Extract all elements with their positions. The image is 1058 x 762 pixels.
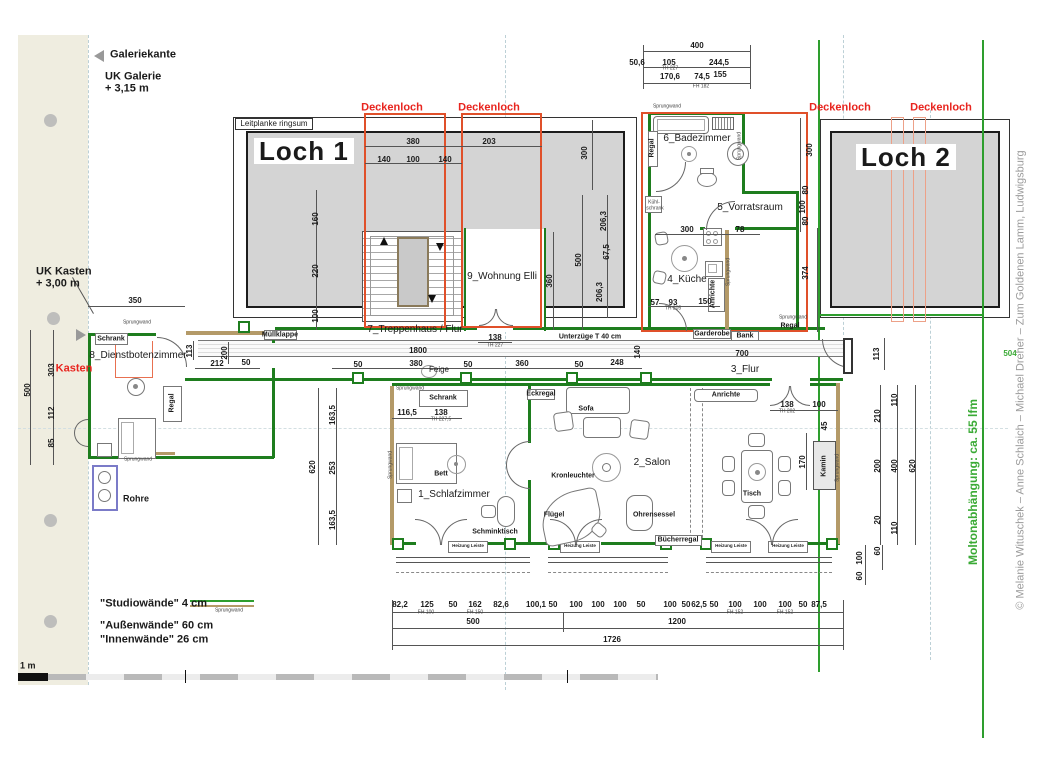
dim: 380 bbox=[406, 138, 419, 146]
dim: 50 bbox=[682, 601, 691, 609]
dim-line bbox=[392, 628, 843, 629]
dim-line bbox=[843, 600, 844, 650]
bed-pillow bbox=[399, 447, 413, 480]
marker-dot bbox=[44, 615, 57, 628]
deckenloch-label: Deckenloch bbox=[361, 103, 423, 114]
dim: 113 bbox=[873, 348, 881, 361]
dining-chair bbox=[722, 456, 735, 472]
dim: 57 bbox=[651, 299, 660, 307]
heizung-label: Heizung Leiste bbox=[772, 544, 804, 549]
bathtub-inner bbox=[657, 119, 705, 131]
guide-line bbox=[18, 428, 1008, 429]
sprungwand-label: Sprungwand bbox=[396, 387, 424, 392]
dim: 100,1 bbox=[526, 601, 546, 609]
dim-line bbox=[365, 146, 542, 147]
regal-label: Regal bbox=[780, 323, 799, 330]
dim: 50 bbox=[354, 361, 363, 369]
dim: 80 bbox=[802, 186, 810, 195]
pipe bbox=[98, 471, 111, 484]
room-vorratsraum: 5_Vorratsraum bbox=[717, 203, 783, 213]
dim-fh: FH 150 bbox=[467, 611, 483, 616]
dim: 350 bbox=[128, 297, 141, 305]
dim: 170 bbox=[799, 455, 807, 468]
dim: 140 bbox=[377, 156, 390, 164]
dim-line bbox=[392, 612, 843, 613]
sofa bbox=[566, 387, 630, 414]
burner bbox=[713, 239, 718, 244]
dim-th: TH 202 bbox=[779, 410, 795, 415]
dim: 78 bbox=[736, 226, 745, 234]
door-gap bbox=[156, 332, 186, 336]
legend-innenwaende: "Innenwände" 26 cm bbox=[100, 635, 208, 646]
uk-galerie-label: UK Galerie bbox=[105, 72, 161, 83]
dim: 60 bbox=[874, 547, 882, 556]
regal-label: Regal bbox=[169, 393, 176, 412]
dim: 113 bbox=[186, 345, 194, 358]
room-treppenhaus: 7_Treppenhaus / Flur bbox=[367, 325, 462, 335]
deckenloch-label: Deckenloch bbox=[809, 103, 871, 114]
chandelier-center bbox=[602, 463, 611, 472]
dim-line bbox=[865, 545, 866, 585]
shower-dot bbox=[687, 152, 691, 156]
bett-label: Bett bbox=[434, 471, 448, 478]
heizung-label: Heizung Leiste bbox=[715, 544, 747, 549]
dim: 50 bbox=[464, 361, 473, 369]
ohrensessel-label: Ohrensessel bbox=[633, 512, 675, 519]
dim: 203 bbox=[482, 138, 495, 146]
dim: 112 bbox=[48, 407, 56, 420]
sprungwand-label: Sprungwand bbox=[836, 454, 841, 482]
dim-th: TH 205 bbox=[665, 307, 681, 312]
schrank-label: Schrank bbox=[429, 395, 457, 402]
dim: 100 bbox=[312, 309, 320, 322]
dim-fh: FH 100 bbox=[418, 611, 434, 616]
room-wohnung-elli: 9_Wohnung Elli bbox=[467, 272, 537, 282]
small-fixture bbox=[97, 443, 112, 457]
dim: 20 bbox=[874, 516, 882, 525]
dim: 82,6 bbox=[493, 601, 509, 609]
dim: 80 bbox=[802, 217, 810, 226]
wall-post bbox=[352, 372, 364, 384]
sprungwand-label: Sprungwand bbox=[653, 105, 681, 110]
dim: 163,5 bbox=[329, 510, 337, 530]
bay-dash bbox=[396, 572, 530, 573]
galeriekante-marker bbox=[94, 50, 104, 62]
dim: 100 bbox=[406, 156, 419, 164]
dim: 160 bbox=[312, 212, 320, 225]
dim-line bbox=[592, 120, 593, 190]
dim: 100 bbox=[812, 401, 825, 409]
dim: 138 bbox=[488, 334, 501, 342]
dim: 300 bbox=[680, 226, 693, 234]
dim: 200 bbox=[874, 459, 882, 472]
dim: 50 bbox=[242, 359, 251, 367]
uk-kasten-label: UK Kasten bbox=[36, 267, 92, 278]
section-tick bbox=[567, 670, 568, 683]
wall bbox=[810, 378, 843, 381]
dining-chair bbox=[748, 505, 765, 519]
dim: 50,6 bbox=[629, 59, 645, 67]
dim-th: TH 227 bbox=[487, 344, 503, 349]
sink-basin bbox=[708, 264, 717, 273]
heizung-label: Heizung Leiste bbox=[452, 544, 484, 549]
room-flur: 3_Flur bbox=[731, 365, 759, 375]
deckenloch-label: Deckenloch bbox=[910, 103, 972, 114]
dim: 206,3 bbox=[596, 282, 604, 302]
dim: 360 bbox=[515, 360, 528, 368]
dim: 87,5 bbox=[811, 601, 827, 609]
bay-dash bbox=[706, 572, 832, 573]
bank-label: Bank bbox=[736, 333, 753, 340]
legend-aussenwaende: "Außenwände" 60 cm bbox=[100, 621, 213, 632]
dim-line bbox=[195, 368, 260, 369]
dim: 45 bbox=[821, 422, 829, 431]
dim: 212 bbox=[210, 360, 223, 368]
entrance-frame bbox=[843, 338, 853, 374]
dim-line bbox=[655, 234, 760, 235]
kamin-label: Kamin bbox=[821, 455, 828, 476]
rug-dot bbox=[454, 462, 458, 466]
room-schlafzimmer: 1_Schlafzimmer bbox=[418, 490, 490, 500]
dim: 60 bbox=[856, 572, 864, 581]
dim: 210 bbox=[874, 409, 882, 422]
dim: 162 bbox=[468, 601, 481, 609]
door-salon-bedroom bbox=[506, 441, 530, 465]
marker-dot bbox=[47, 312, 60, 325]
wall-post bbox=[826, 538, 838, 550]
buecherregal-label: Bücherregal bbox=[658, 537, 699, 544]
dim-line bbox=[563, 612, 564, 632]
wall bbox=[88, 456, 274, 459]
wall-post bbox=[504, 538, 516, 550]
unterzuege-label: Unterzüge T 40 cm bbox=[559, 334, 621, 341]
garderobe-label: Garderobe bbox=[694, 331, 729, 338]
dim: 155 bbox=[713, 71, 726, 79]
dim: 50 bbox=[799, 601, 808, 609]
heizung-label: Heizung Leiste bbox=[564, 544, 596, 549]
dim: 620 bbox=[309, 460, 317, 473]
dining-chair bbox=[748, 433, 765, 447]
dim: 85 bbox=[48, 439, 56, 448]
dim-line bbox=[750, 45, 751, 89]
dim: 253 bbox=[329, 461, 337, 474]
window-line bbox=[706, 557, 832, 558]
dim: 100 bbox=[753, 601, 766, 609]
schminktisch-label: Schminktisch bbox=[472, 529, 518, 536]
dim-line bbox=[817, 228, 818, 332]
dim: 700 bbox=[735, 350, 748, 358]
dim-fh: FH 152 bbox=[727, 611, 743, 616]
dim: 62,5 bbox=[691, 601, 707, 609]
dim-line bbox=[882, 545, 883, 570]
dim: 400 bbox=[891, 459, 899, 472]
schrank-label: Schrank bbox=[97, 336, 125, 343]
toilet-tank bbox=[700, 168, 714, 174]
dim: 1200 bbox=[668, 618, 686, 626]
scale-label: 1 m bbox=[20, 662, 36, 671]
dim-line bbox=[88, 306, 185, 307]
section-tick bbox=[185, 670, 186, 683]
dim: 100 bbox=[613, 601, 626, 609]
dining-chair bbox=[722, 480, 735, 496]
french-door bbox=[746, 519, 772, 545]
sofa-label: Sofa bbox=[578, 406, 593, 413]
fluegel-label: Flügel bbox=[544, 512, 565, 519]
galeriekante-label: Galeriekante bbox=[110, 50, 176, 61]
deckenloch-label: Deckenloch bbox=[458, 103, 520, 114]
dim: 67,5 bbox=[603, 244, 611, 260]
dim-line bbox=[884, 338, 885, 370]
servant-bed-pillow bbox=[121, 422, 134, 454]
armchair bbox=[629, 419, 650, 440]
dim: 620 bbox=[909, 459, 917, 472]
dim: 500 bbox=[24, 383, 32, 396]
dim: 50 bbox=[575, 361, 584, 369]
dim: 116,5 bbox=[397, 409, 417, 417]
room-dienstbotenzimmer: 8_Dienstbotenzimmer bbox=[89, 351, 186, 361]
dim: 170,6 bbox=[660, 73, 680, 81]
dim-line bbox=[643, 67, 750, 68]
dim: 206,3 bbox=[600, 211, 608, 231]
dim: 248 bbox=[610, 359, 623, 367]
dim-line bbox=[392, 645, 843, 646]
dim: 50 bbox=[449, 601, 458, 609]
stool-dot bbox=[133, 384, 138, 389]
french-door bbox=[441, 519, 467, 545]
molton-label: Moltonabhängung: ca. 55 lfm bbox=[967, 399, 979, 565]
dim-line bbox=[800, 118, 801, 232]
dim: 300 bbox=[806, 143, 814, 156]
wall-post bbox=[460, 372, 472, 384]
wall-post bbox=[238, 321, 250, 333]
dim: 150 bbox=[698, 298, 711, 306]
table-dot bbox=[755, 470, 760, 475]
sprungwand-label: Sprungwand bbox=[738, 132, 743, 160]
dim: 100 bbox=[663, 601, 676, 609]
partition-dashed bbox=[702, 388, 703, 543]
dining-chair bbox=[778, 480, 791, 496]
loch1-title: Loch 1 bbox=[254, 138, 354, 164]
sprungwand-label: Sprungwand bbox=[389, 451, 394, 479]
kronleuchter-label: Kronleuchter bbox=[551, 473, 595, 480]
bay-dash bbox=[548, 572, 668, 573]
dim: 303 bbox=[48, 363, 56, 376]
credits-label: © Melanie Wituschek – Anne Schlaich – Mi… bbox=[1016, 150, 1027, 609]
dim: 125 bbox=[420, 601, 433, 609]
sprungwand-label: Sprungwand bbox=[779, 316, 807, 321]
sprungwand-label: Sprungwand bbox=[123, 321, 151, 326]
marker-dot bbox=[44, 114, 57, 127]
sprungwand-label: Sprungwand bbox=[215, 609, 243, 614]
dim: 110 bbox=[891, 522, 899, 535]
dim: 100 bbox=[799, 200, 807, 213]
dim: 374 bbox=[802, 266, 810, 279]
dining-chair bbox=[778, 456, 791, 472]
molton-line bbox=[982, 40, 984, 738]
dim: 50 bbox=[710, 601, 719, 609]
tisch-label: Tisch bbox=[743, 491, 761, 498]
french-door bbox=[772, 519, 798, 545]
regal-label: Regal bbox=[649, 138, 656, 157]
dim: 100 bbox=[778, 601, 791, 609]
window-line bbox=[396, 562, 530, 563]
dim: 100 bbox=[591, 601, 604, 609]
muellklappe-label: Müllklappe bbox=[262, 332, 298, 339]
dim: 163,5 bbox=[329, 405, 337, 425]
wall-post bbox=[392, 538, 404, 550]
dim: 220 bbox=[312, 264, 320, 277]
dim: 500 bbox=[575, 253, 583, 266]
dim: 100 bbox=[569, 601, 582, 609]
dim: 300 bbox=[581, 146, 589, 159]
anrichte-label: Anrichte bbox=[712, 392, 740, 399]
dim-line bbox=[332, 368, 642, 369]
uk-kasten-marker bbox=[76, 329, 86, 341]
dim: 50 bbox=[637, 601, 646, 609]
window-line bbox=[548, 562, 668, 563]
dim: 380 bbox=[409, 360, 422, 368]
dim: 74,5 bbox=[694, 73, 710, 81]
dim-fh: FH 182 bbox=[693, 85, 709, 90]
vanity-chair bbox=[497, 496, 515, 527]
dim: 100 bbox=[728, 601, 741, 609]
wall bbox=[528, 480, 531, 543]
feige-label: Feige bbox=[429, 366, 449, 374]
wall-post bbox=[566, 372, 578, 384]
table-dot bbox=[682, 256, 687, 261]
coffee-table bbox=[583, 417, 621, 438]
rohre-label: Rohre bbox=[123, 495, 149, 504]
armchair bbox=[553, 411, 574, 432]
window-line bbox=[396, 557, 530, 558]
room-salon: 2_Salon bbox=[634, 458, 671, 468]
dim-th: TH 227 bbox=[662, 67, 678, 72]
dim-fh: FH 152 bbox=[777, 611, 793, 616]
dim: 360 bbox=[546, 274, 554, 287]
kasten-label: Kasten bbox=[56, 364, 93, 375]
marker-dot bbox=[44, 514, 57, 527]
wall-post bbox=[640, 372, 652, 384]
small-fixture bbox=[397, 489, 412, 503]
dim: 140 bbox=[438, 156, 451, 164]
floorplan-canvas: GaleriekanteUK Galerie+ 3,15 mUK Kasten+… bbox=[0, 0, 1058, 762]
dim: 50 bbox=[549, 601, 558, 609]
door-salon-bedroom bbox=[506, 465, 530, 489]
scale-bar bbox=[18, 673, 48, 681]
dim-line bbox=[30, 330, 31, 465]
loch2-title: Loch 2 bbox=[856, 144, 956, 170]
dim: 400 bbox=[690, 42, 703, 50]
sprungwand-label: Sprungwand bbox=[124, 458, 152, 463]
leitplanke-label: Leitplanke ringsum bbox=[240, 120, 307, 128]
sprungwand-label: Sprungwand bbox=[727, 258, 732, 286]
dim-th: TH 227,5 bbox=[431, 418, 452, 423]
french-door bbox=[415, 519, 441, 545]
dim: 244,5 bbox=[709, 59, 729, 67]
dim: 82,2 bbox=[392, 601, 408, 609]
partition-dashed bbox=[690, 388, 691, 543]
uk-galerie-height: + 3,15 m bbox=[105, 84, 149, 95]
dim: 100 bbox=[856, 551, 864, 564]
dim: 1726 bbox=[603, 636, 621, 644]
window-line bbox=[706, 562, 832, 563]
vanity-stool bbox=[481, 505, 496, 518]
dim: 110 bbox=[891, 394, 899, 407]
room-badezimmer: 6_Badezimmer bbox=[663, 134, 730, 144]
dim-line bbox=[643, 51, 750, 52]
kuehlschrank-label: schrank bbox=[646, 207, 664, 212]
wall bbox=[272, 368, 275, 458]
legend-studiowaende: "Studiowände" 4 cm bbox=[100, 599, 207, 610]
eckregal-label: Eckregal bbox=[526, 391, 555, 398]
dim: 500 bbox=[466, 618, 479, 626]
radiator bbox=[712, 117, 734, 130]
dim-line bbox=[318, 388, 319, 545]
dim-line bbox=[643, 45, 644, 89]
toilet bbox=[697, 172, 717, 187]
window-line bbox=[548, 557, 668, 558]
dim: 1800 bbox=[409, 347, 427, 355]
room-kueche: 4_Küche bbox=[667, 275, 706, 285]
pipe bbox=[98, 489, 111, 502]
dim: 200 bbox=[221, 346, 229, 359]
uk-kasten-height: + 3,00 m bbox=[36, 279, 80, 290]
burner bbox=[706, 239, 711, 244]
dim: 140 bbox=[634, 345, 642, 358]
